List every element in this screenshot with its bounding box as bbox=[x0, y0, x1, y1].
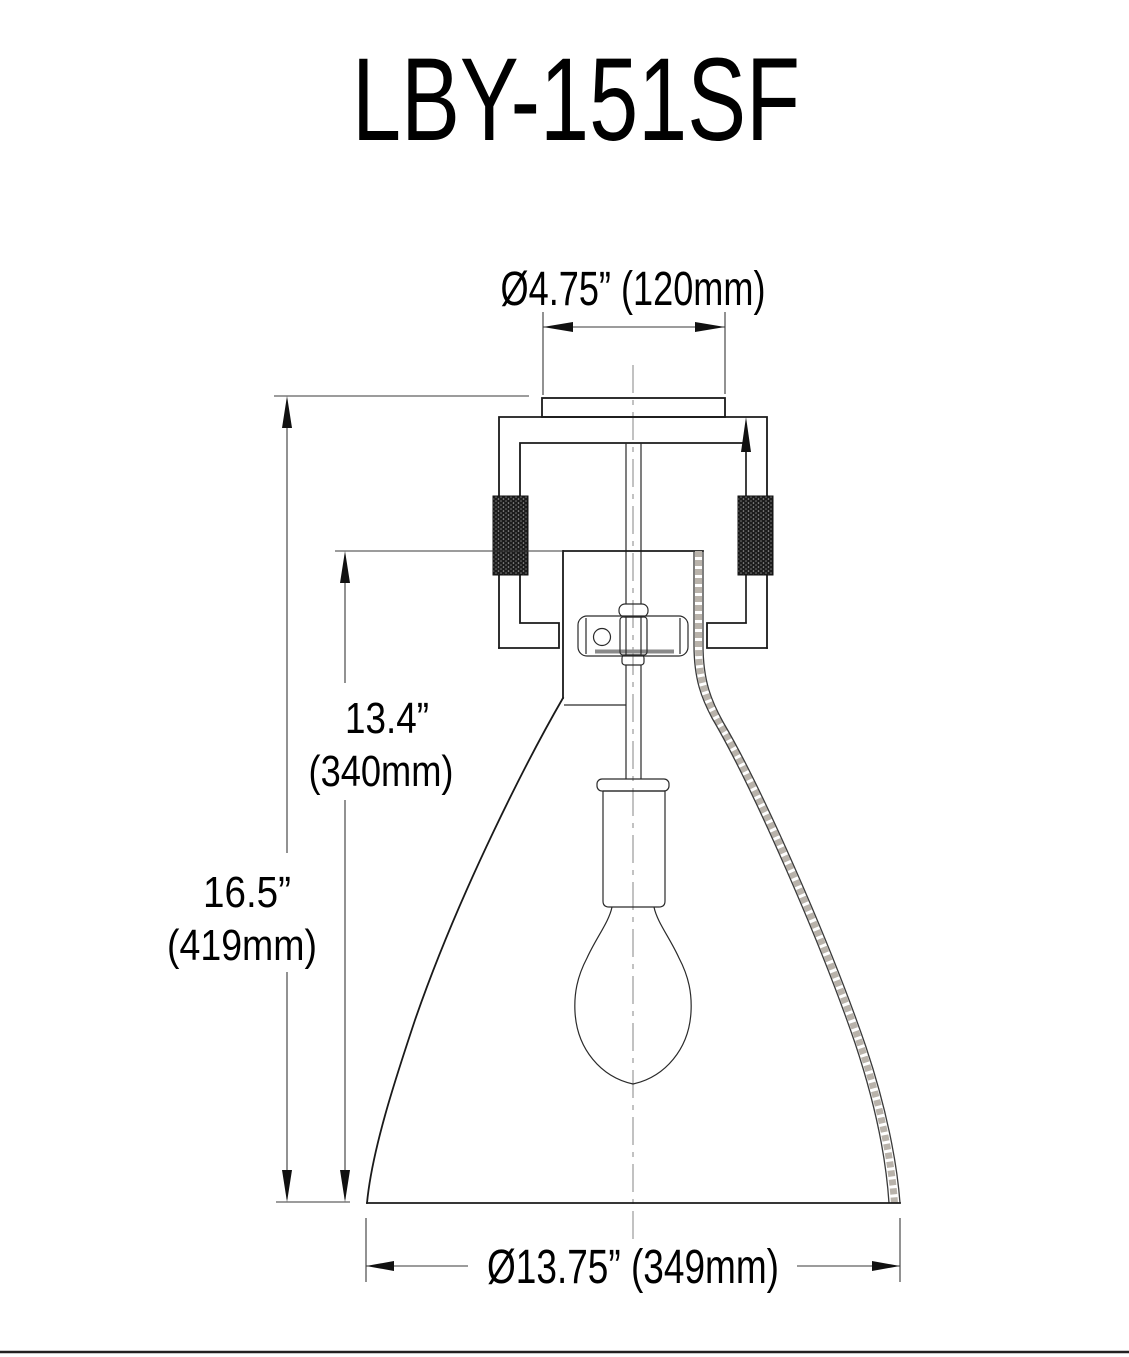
fixture-line-drawing: LBY-151SF Ø4.75” (120mm) 13.4” (340mm) 1… bbox=[0, 0, 1129, 1357]
canopy-diameter-label: Ø4.75” (120mm) bbox=[501, 263, 766, 316]
shade-diameter-label: Ø13.75” (349mm) bbox=[487, 1241, 779, 1294]
overall-height-label-inches: 16.5” bbox=[203, 868, 291, 917]
knurled-thumbscrew-left bbox=[493, 496, 528, 575]
dimension-canopy-diameter bbox=[543, 312, 725, 395]
technical-drawing-sheet: LBY-151SF Ø4.75” (120mm) 13.4” (340mm) 1… bbox=[0, 0, 1129, 1357]
shade-height-label-mm: (340mm) bbox=[309, 747, 454, 796]
knurled-thumbscrew-right bbox=[738, 496, 773, 575]
shade-height-label-inches: 13.4” bbox=[345, 694, 429, 743]
overall-height-label-mm: (419mm) bbox=[167, 921, 317, 970]
dimension-overall-height bbox=[274, 396, 529, 1202]
drawing-title: LBY-151SF bbox=[352, 34, 800, 166]
